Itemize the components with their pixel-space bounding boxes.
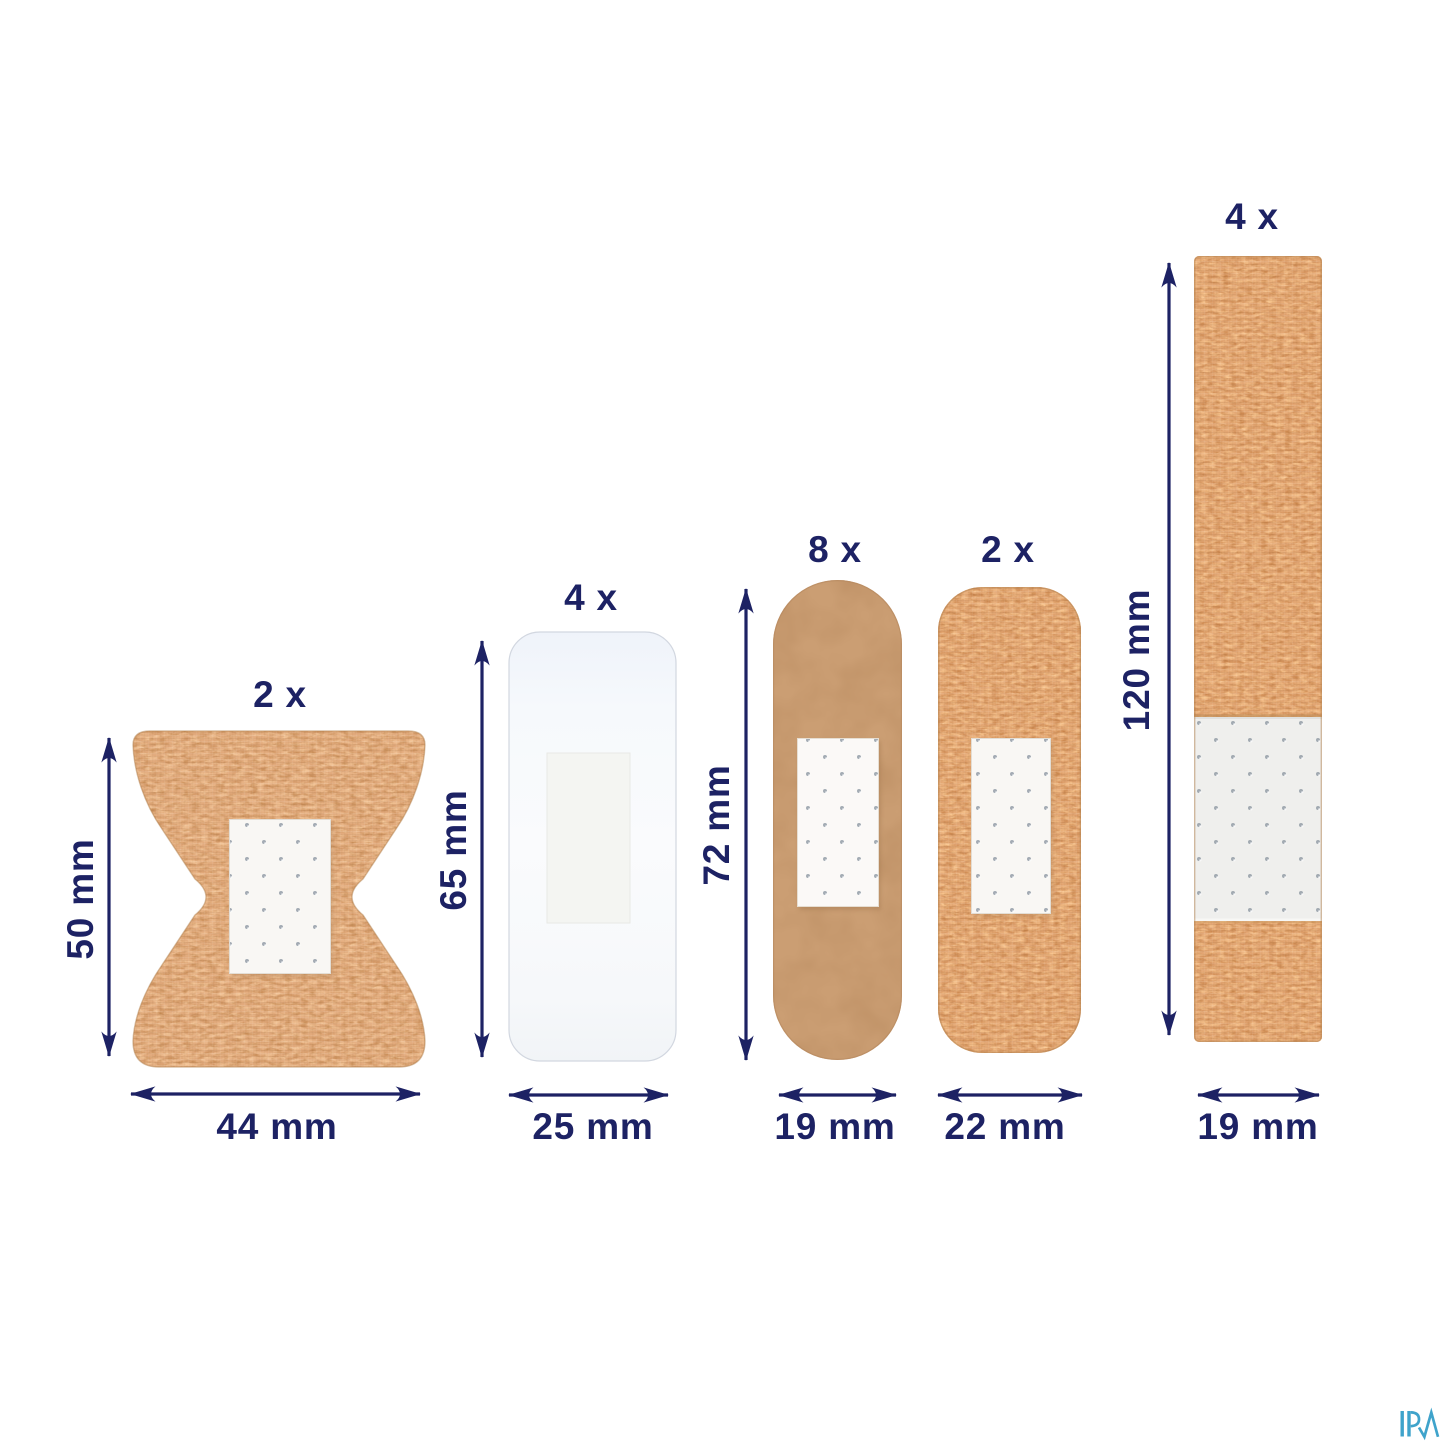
svg-text:44 mm: 44 mm <box>216 1106 337 1147</box>
svg-text:2 x: 2 x <box>253 674 307 715</box>
svg-text:2 x: 2 x <box>981 529 1035 570</box>
svg-text:4 x: 4 x <box>1225 196 1279 237</box>
svg-text:120 mm: 120 mm <box>1116 589 1157 732</box>
svg-text:22 mm: 22 mm <box>944 1106 1065 1147</box>
svg-text:4 x: 4 x <box>564 577 618 618</box>
svg-text:25 mm: 25 mm <box>532 1106 653 1147</box>
svg-text:19 mm: 19 mm <box>774 1106 895 1147</box>
svg-text:50 mm: 50 mm <box>60 838 101 959</box>
svg-text:65 mm: 65 mm <box>433 789 474 910</box>
svg-text:8 x: 8 x <box>808 529 862 570</box>
svg-text:72 mm: 72 mm <box>696 764 737 885</box>
svg-text:19 mm: 19 mm <box>1197 1106 1318 1147</box>
